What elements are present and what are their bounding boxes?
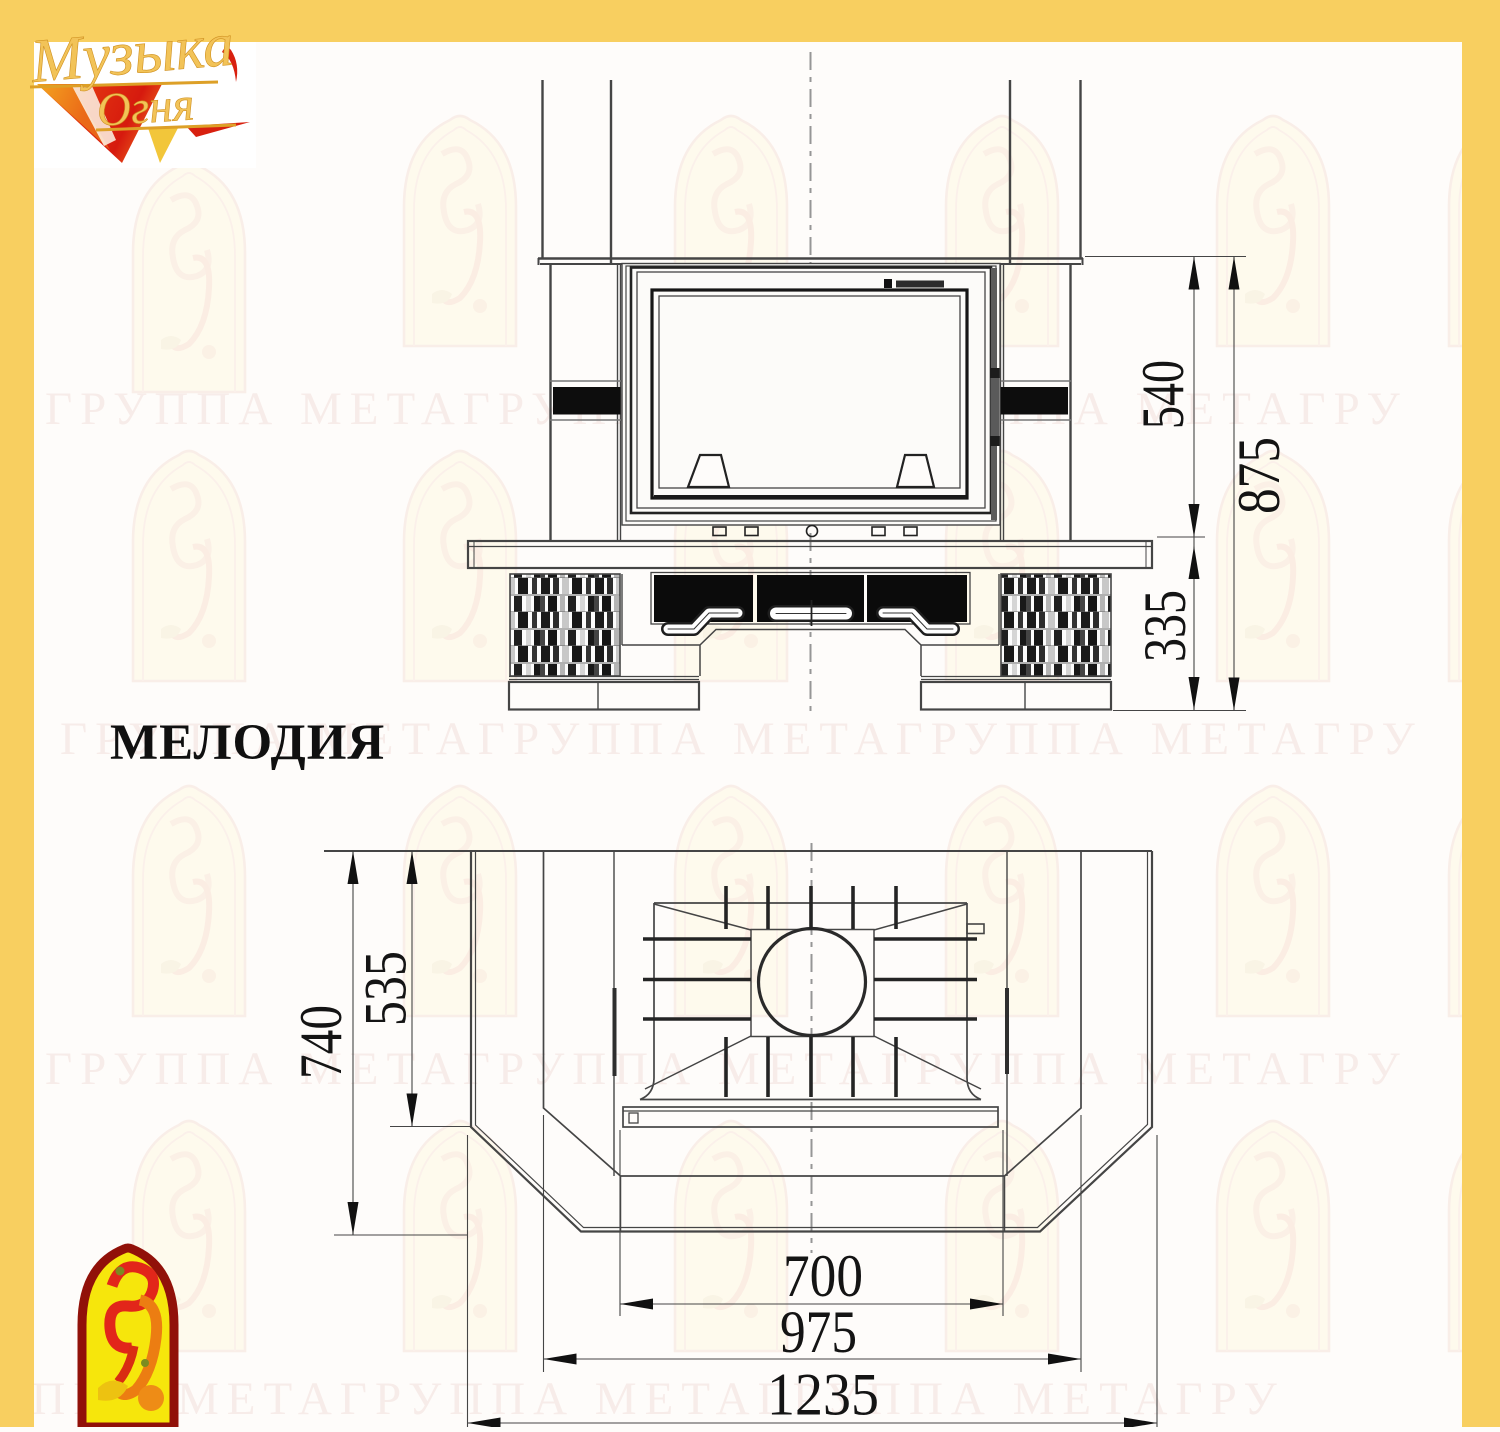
svg-text:ГРУППА МЕТАГРУППА МЕТАГРУППА М: ГРУППА МЕТАГРУППА МЕТАГРУППА МЕТАГРУ [0,1373,1285,1425]
svg-text:МЕЛОДИЯ: МЕЛОДИЯ [110,715,385,771]
svg-text:875: 875 [1226,437,1292,514]
svg-text:540: 540 [1130,360,1196,429]
svg-text:740: 740 [288,1005,354,1079]
svg-text:535: 535 [353,951,419,1026]
svg-text:335: 335 [1132,590,1198,662]
svg-text:1235: 1235 [767,1362,879,1428]
svg-text:Огня: Огня [95,78,196,137]
svg-text:975: 975 [780,1299,857,1365]
